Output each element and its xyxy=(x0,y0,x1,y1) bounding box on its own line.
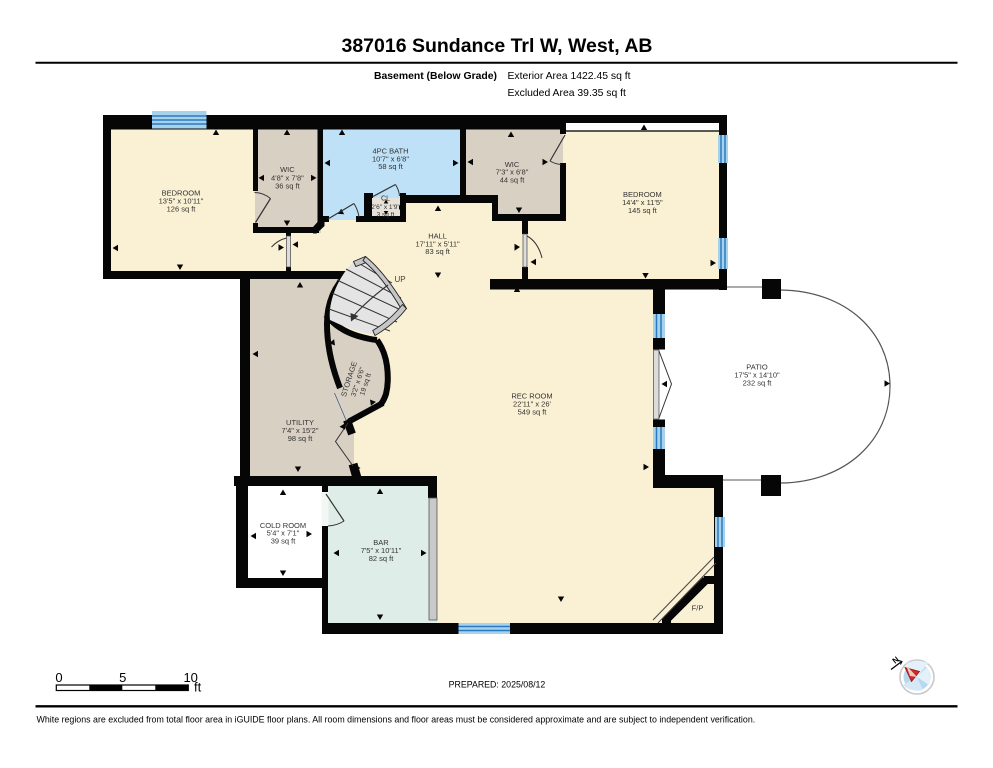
svg-text:5: 5 xyxy=(119,670,126,685)
svg-text:36 sq ft: 36 sq ft xyxy=(275,181,301,190)
svg-text:232 sq ft: 232 sq ft xyxy=(743,379,773,388)
svg-text:ft: ft xyxy=(194,680,202,695)
svg-text:82 sq ft: 82 sq ft xyxy=(369,554,395,563)
svg-text:F/P: F/P xyxy=(692,604,704,613)
svg-text:Basement (Below Grade): Basement (Below Grade) xyxy=(374,71,497,82)
svg-text:83 sq ft: 83 sq ft xyxy=(425,247,451,256)
svg-text:98 sq ft: 98 sq ft xyxy=(288,434,314,443)
svg-text:UP: UP xyxy=(394,275,405,284)
svg-text:0: 0 xyxy=(55,670,62,685)
svg-text:PREPARED: 2025/08/12: PREPARED: 2025/08/12 xyxy=(449,680,546,690)
svg-text:145 sq ft: 145 sq ft xyxy=(628,206,658,215)
svg-text:White regions are excluded fro: White regions are excluded from total fl… xyxy=(37,715,756,725)
svg-text:2'6" x 1'9": 2'6" x 1'9" xyxy=(371,204,400,211)
svg-text:58 sq ft: 58 sq ft xyxy=(378,162,404,171)
svg-text:44 sq ft: 44 sq ft xyxy=(500,175,526,184)
svg-text:387016 Sundance Trl W, West, A: 387016 Sundance Trl W, West, AB xyxy=(341,35,652,57)
svg-text:39 sq ft: 39 sq ft xyxy=(271,537,297,546)
svg-text:Exterior Area 1422.45 sq ft: Exterior Area 1422.45 sq ft xyxy=(508,71,631,82)
svg-text:126 sq ft: 126 sq ft xyxy=(167,204,197,213)
svg-text:549 sq ft: 549 sq ft xyxy=(518,408,548,417)
svg-text:Excluded Area 39.35 sq ft: Excluded Area 39.35 sq ft xyxy=(508,88,627,99)
